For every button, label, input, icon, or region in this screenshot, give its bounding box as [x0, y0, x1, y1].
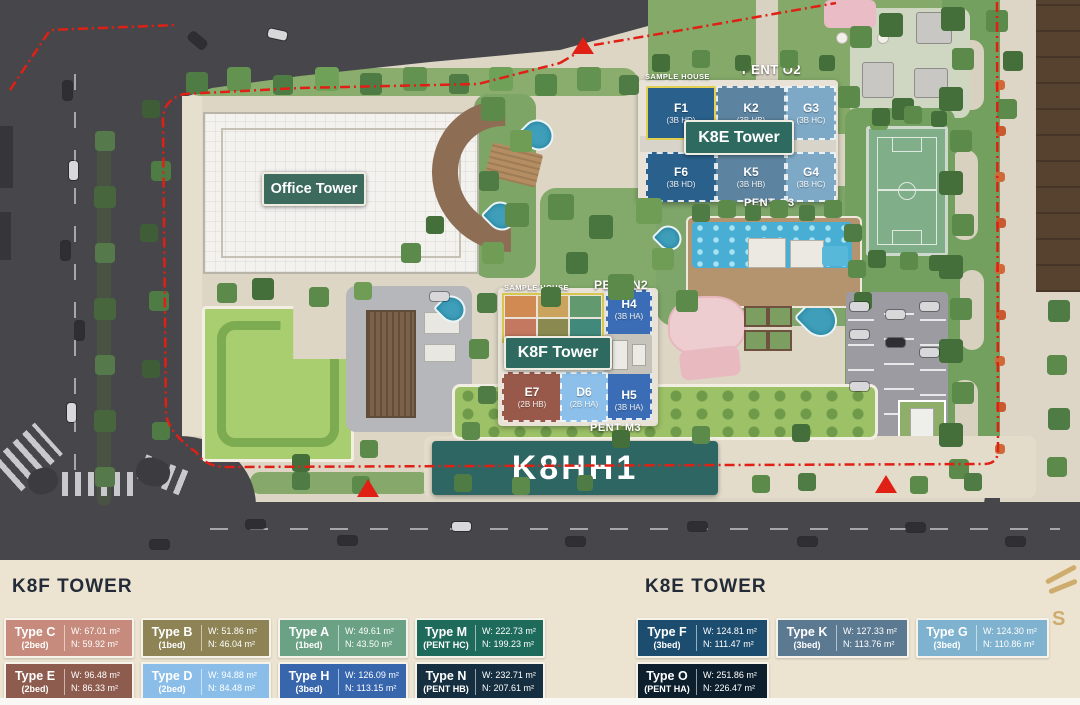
site-plan-page: Office Tower — [0, 0, 1080, 705]
unit-cell-h5: H5 (3B HA) — [615, 389, 643, 412]
unit-code: G4 — [803, 166, 819, 178]
type-name: Type E — [6, 670, 64, 683]
area-w: W: 51.86 m² — [208, 625, 269, 638]
planter-1 — [744, 306, 768, 327]
planter-4 — [768, 330, 792, 351]
parked-car — [850, 302, 869, 311]
type-name-block: Type F(3bed) — [638, 626, 696, 649]
k8f-tower-label: K8F Tower — [504, 336, 612, 370]
type-name-block: Type C(2bed) — [6, 626, 64, 649]
area-n: N: 226.47 m² — [703, 682, 767, 695]
unit-type: (2B HB) — [518, 400, 546, 409]
type-bed: (2bed) — [6, 684, 64, 694]
legend-cell-type-b: Type B(1bed) W: 51.86 m²N: 46.04 m² — [141, 618, 271, 658]
court-key-bottom — [892, 230, 922, 245]
roof-lawn — [202, 306, 354, 462]
type-name: Type C — [6, 626, 64, 639]
area-n: N: 59.92 m² — [71, 638, 132, 651]
car — [688, 522, 707, 531]
legend-cell-type-h: Type H(3bed) W: 126.09 m²N: 113.15 m² — [278, 662, 408, 702]
path-right-2 — [952, 150, 978, 240]
mini-unit — [538, 296, 569, 317]
area-w: W: 49.61 m² — [345, 625, 406, 638]
type-bed: (PENT HC) — [417, 640, 475, 650]
car — [63, 81, 72, 100]
planter-3 — [744, 330, 768, 351]
unit-cell-e7: E7 (2B HB) — [502, 372, 562, 422]
parked-car — [920, 348, 939, 357]
k8e-legend-title: K8E TOWER — [645, 576, 767, 598]
type-areas: W: 222.73 m²N: 199.23 m² — [476, 625, 543, 650]
legend-cell-type-k: Type K(3bed) W: 127.33 m²N: 113.76 m² — [776, 618, 909, 658]
k8hh1-banner: K8HH1 — [432, 441, 718, 495]
flower-hedge-east — [0, 0, 2, 2]
service-structure-2 — [424, 344, 456, 362]
car — [75, 321, 84, 340]
type-name: Type M — [417, 626, 475, 639]
parked-car — [850, 330, 869, 339]
area-w: W: 251.86 m² — [703, 669, 767, 682]
area-n: N: 46.04 m² — [208, 638, 269, 651]
unit-cell-g4: G4 (3B HC) — [786, 152, 836, 202]
umbrella-1 — [836, 32, 848, 44]
car — [906, 523, 925, 532]
unit-code: F6 — [674, 166, 688, 178]
unit-type: (3B HC) — [797, 116, 826, 125]
unit-type: (3B HB) — [737, 180, 765, 189]
jacuzzi — [822, 246, 848, 266]
legend-cell-type-c: Type C(2bed) W: 67.01 m²N: 59.92 m² — [4, 618, 134, 658]
car — [61, 241, 70, 260]
type-name-block: Type M(PENT HC) — [417, 626, 475, 649]
unit-code: H5 — [615, 389, 643, 401]
type-bed: (3bed) — [638, 640, 696, 650]
parked-car — [886, 310, 905, 319]
unit-type: (2B HA) — [570, 400, 598, 409]
lane-line-bottom — [210, 528, 1060, 530]
type-areas: W: 127.33 m²N: 113.76 m² — [837, 625, 907, 650]
court-key-top — [892, 137, 922, 152]
road-median — [97, 130, 111, 506]
path-right-3 — [960, 270, 984, 350]
adjacent-building — [1036, 0, 1080, 292]
parked-car — [850, 382, 869, 391]
type-areas: W: 67.01 m²N: 59.92 m² — [65, 625, 132, 650]
car — [1006, 537, 1025, 546]
area-n: N: 84.48 m² — [208, 682, 269, 695]
legend-cell-type-a: Type A(1bed) W: 49.61 m²N: 43.50 m² — [278, 618, 408, 658]
k8f-legend-row-2: Type E(2bed) W: 96.48 m²N: 86.33 m² Type… — [4, 662, 545, 702]
type-bed: (2bed) — [6, 640, 64, 650]
type-name-block: Type N(PENT HB) — [417, 670, 475, 693]
car — [338, 536, 357, 545]
legend-cell-type-f: Type F(3bed) W: 124.81 m²N: 111.47 m² — [636, 618, 769, 658]
area-n: N: 110.86 m² — [983, 638, 1047, 651]
unit-code: H4 — [615, 298, 643, 310]
legend-cell-type-e: Type E(2bed) W: 96.48 m²N: 86.33 m² — [4, 662, 134, 702]
k8f-legend-title: K8F TOWER — [12, 576, 133, 598]
legend-cell-type-o: Type O(PENT HA) W: 251.86 m²N: 226.47 m² — [636, 662, 769, 702]
type-areas: W: 126.09 m²N: 113.15 m² — [339, 669, 406, 694]
mini-unit — [570, 296, 601, 317]
car — [566, 537, 585, 546]
area-w: W: 94.88 m² — [208, 669, 269, 682]
type-bed: (PENT HB) — [417, 684, 475, 694]
legend-cell-type-d: Type D(2bed) W: 94.88 m²N: 84.48 m² — [141, 662, 271, 702]
unit-code: E7 — [525, 386, 540, 398]
type-bed: (1bed) — [143, 640, 201, 650]
type-areas: W: 51.86 m²N: 46.04 m² — [202, 625, 269, 650]
type-name: Type K — [778, 626, 836, 639]
area-n: N: 113.76 m² — [843, 638, 907, 651]
parked-car — [920, 302, 939, 311]
k8e-legend-row-1: Type F(3bed) W: 124.81 m²N: 111.47 m² Ty… — [636, 618, 1049, 658]
legend-cell-type-m: Type M(PENT HC) W: 222.73 m²N: 199.23 m² — [415, 618, 545, 658]
garden-south-1 — [250, 472, 430, 494]
type-bed: (1bed) — [280, 640, 338, 650]
type-name-block: Type K(3bed) — [778, 626, 836, 649]
car — [67, 403, 76, 422]
sample-house-label-k8f: SAMPLE HOUSE — [504, 283, 569, 292]
type-name: Type O — [638, 670, 696, 683]
type-name: Type N — [417, 670, 475, 683]
k8f-legend-row-1: Type C(2bed) W: 67.01 m²N: 59.92 m² Type… — [4, 618, 545, 658]
car — [246, 520, 265, 529]
car — [452, 522, 471, 531]
unit-code: D6 — [576, 386, 591, 398]
type-bed: (PENT HA) — [638, 684, 696, 694]
type-name-block: Type E(2bed) — [6, 670, 64, 693]
pent-m3-label: PENT M3 — [590, 422, 641, 434]
area-n: N: 199.23 m² — [482, 638, 543, 651]
type-areas: W: 251.86 m²N: 226.47 m² — [697, 669, 767, 694]
type-name: Type D — [143, 670, 201, 683]
area-w: W: 96.48 m² — [71, 669, 132, 682]
curbside-structure-1 — [0, 126, 13, 188]
basketball-court — [866, 126, 948, 256]
master-plan-map: Office Tower — [0, 0, 1080, 560]
type-areas: W: 124.81 m²N: 111.47 m² — [697, 625, 767, 650]
k8e-legend-row-2: Type O(PENT HA) W: 251.86 m²N: 226.47 m² — [636, 662, 769, 702]
area-n: N: 111.47 m² — [703, 638, 767, 651]
utility-shed — [910, 408, 934, 438]
unit-code: K5 — [743, 166, 758, 178]
mini-unit — [505, 296, 536, 317]
curbside-structure-2 — [0, 212, 11, 260]
type-areas: W: 232.71 m²N: 207.61 m² — [476, 669, 543, 694]
area-w: W: 124.81 m² — [703, 625, 767, 638]
unit-code: K2 — [743, 102, 758, 114]
pavilion-3 — [916, 12, 952, 44]
legend-band: K8F TOWER K8E TOWER Type C(2bed) W: 67.0… — [0, 560, 1080, 705]
unit-code: G3 — [803, 102, 819, 114]
type-name: Type B — [143, 626, 201, 639]
unit-cell-h4: H4 (3B HA) — [615, 298, 643, 321]
legend-cell-type-n: Type N(PENT HB) W: 232.71 m²N: 207.61 m² — [415, 662, 545, 702]
playground-pink — [824, 0, 876, 28]
type-bed: (3bed) — [280, 684, 338, 694]
type-name-block: Type O(PENT HA) — [638, 670, 696, 693]
area-w: W: 127.33 m² — [843, 625, 907, 638]
type-name-block: Type D(2bed) — [143, 670, 201, 693]
office-tower-label: Office Tower — [262, 172, 366, 206]
unit-type: (3B HD) — [667, 180, 696, 189]
pavilion-1 — [862, 62, 894, 98]
bottom-strip — [0, 698, 1080, 705]
area-n: N: 113.15 m² — [345, 682, 406, 695]
sidewalk-west — [182, 96, 202, 436]
planter-2 — [768, 306, 792, 327]
sample-house-label-k8e: SAMPLE HOUSE — [645, 72, 710, 81]
type-areas: W: 49.61 m²N: 43.50 m² — [339, 625, 406, 650]
type-bed: (3bed) — [778, 640, 836, 650]
lounge-area — [679, 345, 742, 381]
canopy-building — [366, 310, 416, 418]
k8e-tower-label: K8E Tower — [684, 120, 794, 155]
type-name-block: Type G(3bed) — [918, 626, 976, 649]
type-areas: W: 94.88 m²N: 84.48 m² — [202, 669, 269, 694]
car — [150, 540, 169, 549]
unit-cell-f6: F6 (3B HD) — [646, 152, 716, 202]
car — [798, 537, 817, 546]
unit-type: (3B HA) — [615, 403, 643, 412]
pent-o3-label: PENT O3 — [744, 197, 795, 209]
type-areas: W: 124.30 m²N: 110.86 m² — [977, 625, 1047, 650]
unit-cell-d6: D6 (2B HA) — [560, 372, 608, 422]
core-lift — [612, 340, 628, 370]
unit-type: (3B HA) — [615, 312, 643, 321]
type-bed: (3bed) — [918, 640, 976, 650]
type-name-block: Type A(1bed) — [280, 626, 338, 649]
area-w: W: 67.01 m² — [71, 625, 132, 638]
area-w: W: 222.73 m² — [482, 625, 543, 638]
pavilion-2 — [914, 68, 948, 98]
pool-pavilion-2 — [790, 240, 824, 268]
unit-type: (3B HC) — [797, 180, 826, 189]
pent-n2-label: PENT N2 — [594, 278, 648, 292]
type-name: Type G — [918, 626, 976, 639]
unit-cell-k5: K5 (3B HB) — [716, 152, 786, 202]
type-name: Type F — [638, 626, 696, 639]
court-mid-line — [877, 189, 937, 191]
type-name-block: Type B(1bed) — [143, 626, 201, 649]
crosswalk-south — [62, 472, 140, 496]
type-name-block: Type H(3bed) — [280, 670, 338, 693]
type-bed: (2bed) — [143, 684, 201, 694]
area-n: N: 207.61 m² — [482, 682, 543, 695]
court-center-circle — [898, 182, 916, 200]
area-w: W: 232.71 m² — [482, 669, 543, 682]
area-w: W: 124.30 m² — [983, 625, 1047, 638]
area-w: W: 126.09 m² — [345, 669, 406, 682]
umbrella-2 — [856, 36, 868, 48]
type-name: Type H — [280, 670, 338, 683]
pool-pavilion-1 — [748, 238, 786, 268]
unit-code: F1 — [674, 102, 688, 114]
type-areas: W: 96.48 m²N: 86.33 m² — [65, 669, 132, 694]
watermark-letter: S — [1052, 608, 1065, 631]
umbrella-3 — [877, 32, 889, 44]
parked-car — [886, 338, 905, 347]
pent-o2-label: PENT O2 — [742, 62, 801, 77]
legend-cell-type-g: Type G(3bed) W: 124.30 m²N: 110.86 m² — [916, 618, 1049, 658]
core-stair — [632, 344, 646, 366]
parked-car — [430, 292, 449, 301]
lawn-hedge — [217, 321, 339, 447]
area-n: N: 86.33 m² — [71, 682, 132, 695]
area-n: N: 43.50 m² — [345, 638, 406, 651]
car — [69, 161, 78, 180]
type-name: Type A — [280, 626, 338, 639]
watermark-logo: S — [1040, 568, 1080, 638]
